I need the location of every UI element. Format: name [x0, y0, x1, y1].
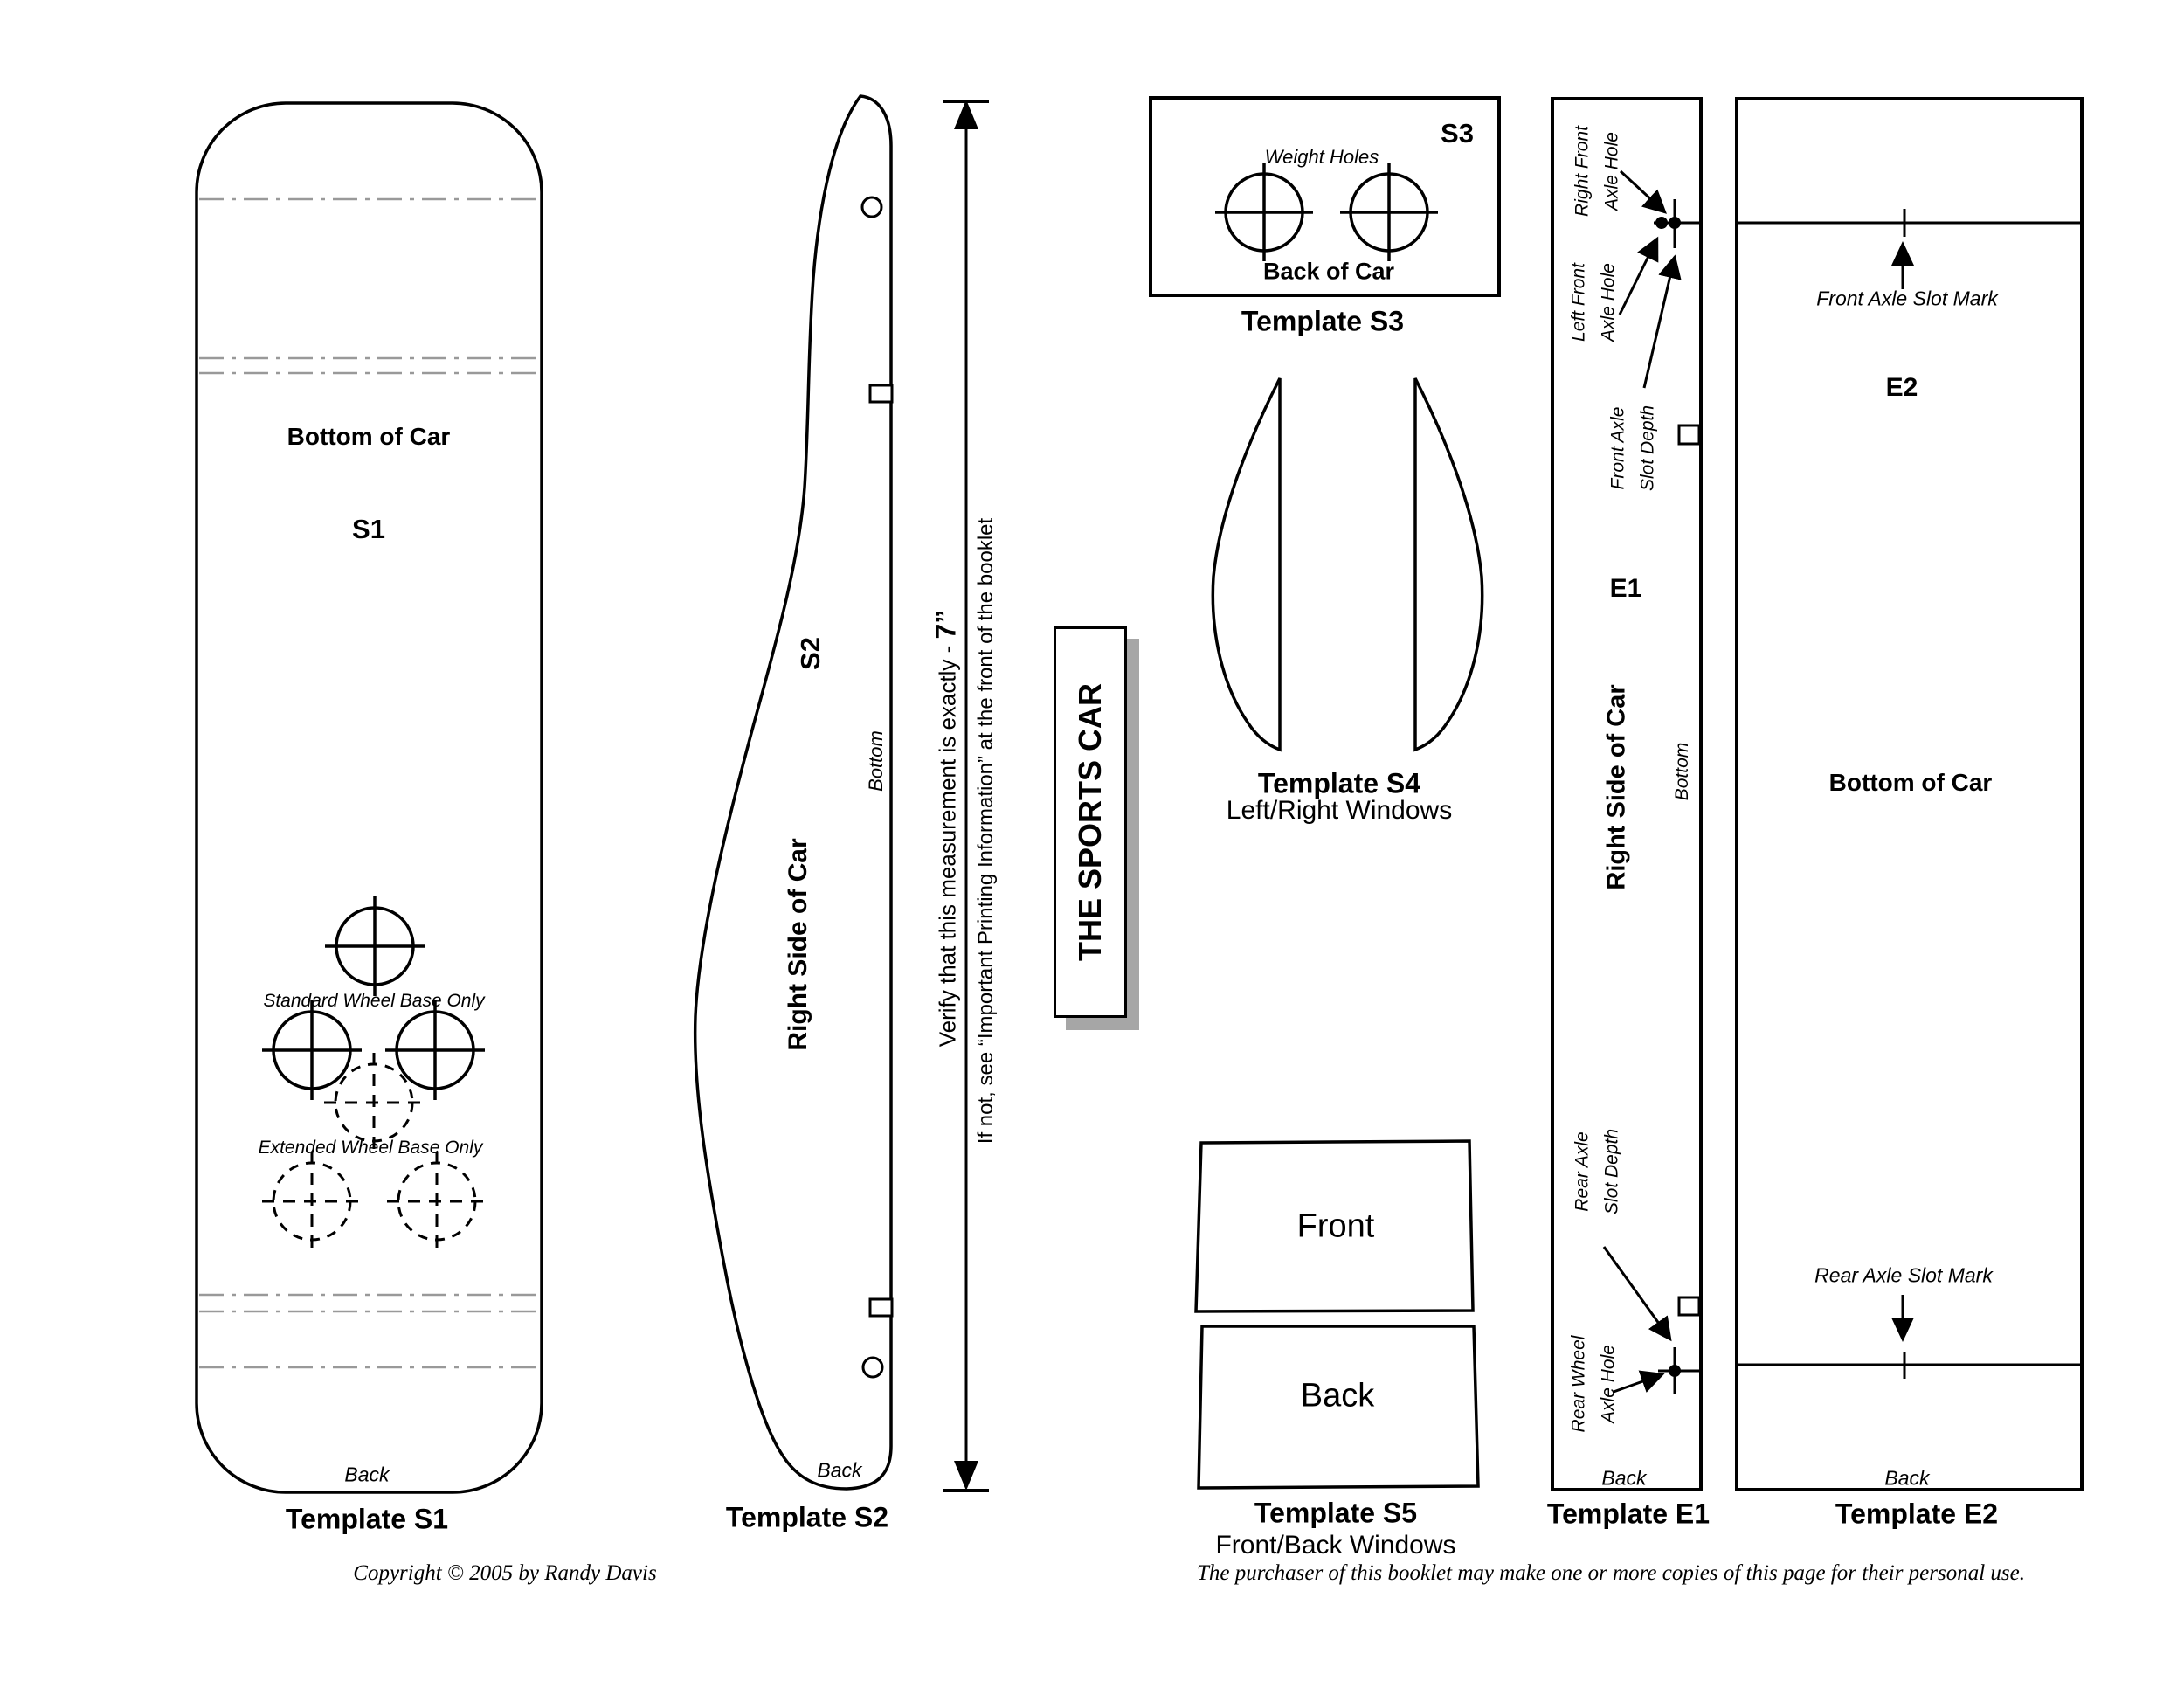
e2-back-label: Back [1884, 1467, 1929, 1491]
axle-guide-lines [199, 199, 539, 1367]
s5-subtitle: Front/Back Windows [1215, 1531, 1455, 1560]
e1-rear-axle-line2: Slot Depth [1597, 1129, 1627, 1214]
license-line: The purchaser of this booklet may make o… [1197, 1561, 2025, 1586]
s3-weight-holes-label: Weight Holes [1265, 146, 1379, 169]
e2-rear-axle-slot-mark-label: Rear Axle Slot Mark [1814, 1264, 1993, 1288]
template-s1-outline [197, 103, 542, 1492]
rear-axle-slot-notch [1679, 1297, 1699, 1315]
s1-extended-wheelbase-label: Extended Wheel Base Only [259, 1138, 483, 1159]
s1-id-label: S1 [352, 514, 385, 545]
e1-right-side-label: Right Side of Car [1603, 684, 1632, 889]
s1-standard-wheelbase-label: Standard Wheel Base Only [263, 991, 484, 1012]
template-page: Bottom of Car S1 Standard Wheel Base Onl… [0, 0, 2184, 1688]
s1-bottom-of-car-label: Bottom of Car [287, 423, 451, 451]
s3-id-label: S3 [1441, 118, 1474, 149]
e1-right-front-line2: Axle Hole [1597, 126, 1627, 217]
e2-bottom-of-car-label: Bottom of Car [1829, 769, 1993, 797]
measurement-note-text: Verify that this measurement is exactly … [935, 640, 961, 1048]
e1-bottom-label: Bottom [1672, 743, 1693, 801]
e1-front-axle-line1: Front Axle [1603, 405, 1633, 491]
measurement-value: 7” [930, 610, 962, 640]
e2-id-label: E2 [1886, 373, 1918, 403]
s2-bottom-label: Bottom [865, 730, 888, 792]
rear-mark-arrowhead [1891, 1318, 1914, 1342]
s5-template-title: Template S5 [1254, 1498, 1417, 1530]
s1-back-label: Back [344, 1463, 389, 1487]
left-front-arrow [1620, 239, 1657, 315]
s5-front-window-label: Front [1297, 1208, 1375, 1246]
e1-left-front-line1: Left Front [1564, 263, 1593, 342]
s4-subtitle: Left/Right Windows [1227, 796, 1452, 826]
e1-right-front-axle-hole-label: Right Front Axle Hole [1567, 126, 1626, 217]
template-s2-outline [695, 96, 892, 1489]
s3-back-of-car-label: Back of Car [1263, 259, 1394, 286]
e1-back-label: Back [1601, 1467, 1646, 1491]
measurement-note-line1: Verify that this measurement is exactly … [930, 610, 963, 1048]
e1-front-axle-line2: Slot Depth [1633, 405, 1662, 491]
s1-template-title: Template S1 [286, 1504, 448, 1536]
right-front-arrow [1621, 171, 1665, 212]
s5-back-window-label: Back [1301, 1378, 1374, 1415]
copyright-line: Copyright © 2005 by Randy Davis [353, 1561, 656, 1586]
s4-template-title: Template S4 [1258, 768, 1420, 800]
e2-front-axle-slot-mark-label: Front Axle Slot Mark [1816, 287, 1997, 311]
s2-right-side-label: Right Side of Car [784, 838, 813, 1050]
e1-front-axle-slot-depth-label: Front Axle Slot Depth [1603, 405, 1662, 491]
e1-rear-wheel-line1: Rear Wheel [1564, 1336, 1593, 1433]
e1-rear-wheel-line2: Axle Hole [1593, 1336, 1623, 1433]
left-front-axle-hole-dot [1655, 217, 1668, 229]
e1-template-title: Template E1 [1547, 1498, 1710, 1531]
s3-template-title: Template S3 [1241, 306, 1404, 338]
e1-rear-wheel-axle-hole-label: Rear Wheel Axle Hole [1564, 1336, 1622, 1433]
e1-left-front-axle-hole-label: Left Front Axle Hole [1564, 263, 1622, 342]
e1-id-label: E1 [1610, 574, 1642, 604]
e1-rear-axle-line1: Rear Axle [1567, 1129, 1597, 1214]
e1-rear-axle-slot-depth-label: Rear Axle Slot Depth [1567, 1129, 1626, 1214]
template-s5-outline [1196, 1141, 1478, 1488]
rear-slot-depth-arrow [1604, 1247, 1670, 1339]
s2-id-label: S2 [795, 637, 826, 670]
e1-left-front-line2: Axle Hole [1593, 263, 1623, 342]
e1-right-front-line1: Right Front [1567, 126, 1597, 217]
front-mark-arrowhead [1891, 241, 1914, 266]
s2-back-label: Back [817, 1459, 861, 1483]
s2-template-title: Template S2 [726, 1502, 888, 1534]
weight-hole-circles [1215, 163, 1438, 261]
booklet-title-box: THE SPORTS CAR [1054, 626, 1127, 1018]
front-axle-slot-notch [1679, 425, 1699, 444]
front-slot-depth-arrow [1644, 257, 1675, 388]
booklet-title: THE SPORTS CAR [1072, 683, 1109, 961]
measurement-note-line2: If not, see “Important Printing Informat… [974, 518, 999, 1144]
e2-template-title: Template E2 [1835, 1498, 1998, 1531]
template-s4-outline [1213, 378, 1482, 750]
